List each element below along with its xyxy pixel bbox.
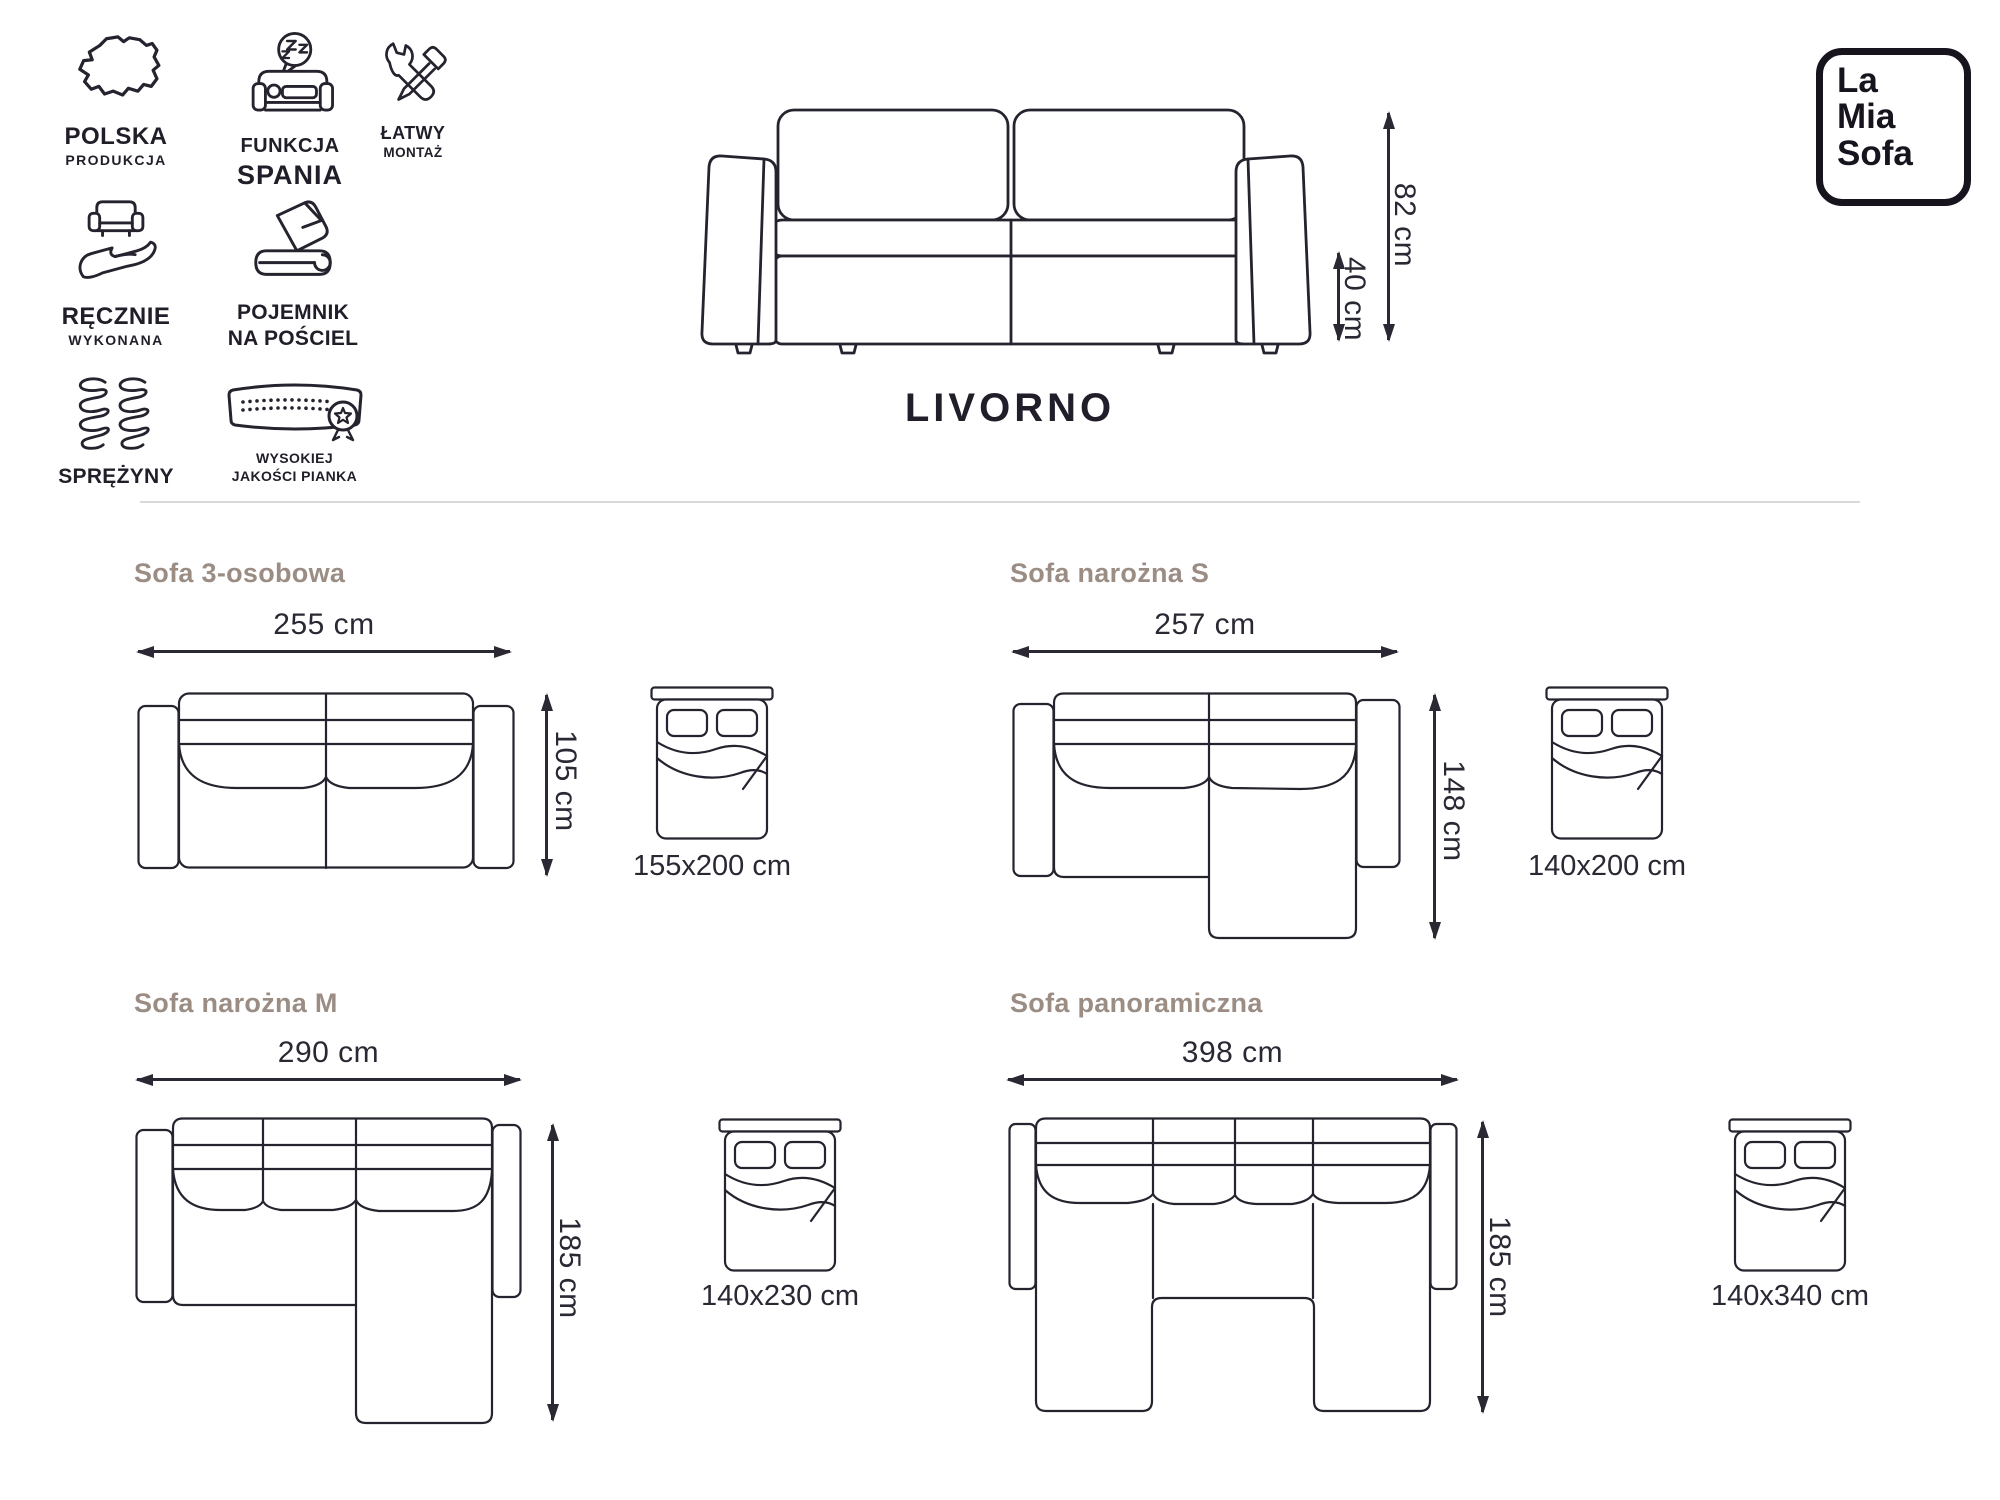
product-title: LIVORNO — [710, 386, 1310, 431]
variant-width-label: 257 cm — [1013, 608, 1397, 642]
brand-logo: La Mia Sofa — [1816, 48, 1971, 206]
dimension-label-seat-height: 40 cm — [1339, 229, 1369, 369]
feature-wysokiej-jakosci-pianka: WYSOKIEJ JAKOŚCI PIANKA — [192, 378, 397, 485]
brand-line: Sofa — [1837, 136, 1964, 172]
sofa-top-view-narozna-s — [1012, 692, 1401, 940]
variant-heading: Sofa narożna S — [1010, 558, 1209, 589]
feature-polska-produkcja: POLSKA PRODUKCJA — [36, 34, 196, 170]
depth-arrow — [545, 695, 548, 875]
sofa-front-view-drawing — [692, 94, 1320, 362]
bed-top-view-icon — [1545, 686, 1669, 840]
sofa-top-view-narozna-m — [135, 1117, 522, 1425]
feature-sublabel: NA POŚCIEL — [198, 326, 388, 352]
bed-top-view-icon — [650, 686, 774, 840]
width-arrow — [137, 1078, 520, 1081]
width-arrow — [138, 650, 510, 653]
feature-pojemnik-na-posciel: POJEMNIK NA POŚCIEL — [198, 194, 388, 353]
easy-assembly-icon — [348, 40, 478, 114]
variant-width-label: 255 cm — [138, 608, 510, 642]
brand-line: La — [1837, 63, 1964, 99]
variant-width-label: 398 cm — [1008, 1036, 1457, 1070]
product-spec-sheet: POLSKA PRODUKCJA FUNKCJA SPANIA — [0, 0, 2000, 1500]
feature-recznie-wykonana: RĘCZNIE WYKONANA — [36, 198, 196, 350]
section-divider — [140, 501, 1860, 503]
bed-top-view-icon — [1728, 1118, 1852, 1272]
feature-label: POJEMNIK — [198, 300, 388, 326]
feature-sublabel: SPANIA — [200, 159, 380, 193]
depth-arrow — [1433, 695, 1436, 938]
variant-depth-label: 185 cm — [554, 1198, 584, 1338]
bed-size-label: 140x340 cm — [1705, 1280, 1875, 1313]
width-arrow — [1008, 1078, 1457, 1081]
feature-sprezyny: SPRĘŻYNY — [36, 372, 196, 490]
bedding-storage-icon — [198, 194, 388, 292]
variant-width-label: 290 cm — [137, 1036, 520, 1070]
feature-sublabel: JAKOŚCI PIANKA — [192, 468, 397, 486]
bed-size-label: 155x200 cm — [627, 850, 797, 883]
feature-label: SPRĘŻYNY — [36, 464, 196, 490]
foam-quality-icon — [192, 378, 397, 442]
feature-latwy-montaz: ŁATWY MONTAŻ — [348, 40, 478, 161]
feature-label: RĘCZNIE — [36, 302, 196, 332]
variant-heading: Sofa narożna M — [134, 988, 338, 1019]
feature-sublabel: PRODUKCJA — [36, 152, 196, 170]
feature-sublabel: MONTAŻ — [348, 145, 478, 162]
variant-depth-label: 185 cm — [1484, 1197, 1514, 1337]
feature-sublabel: WYKONANA — [36, 332, 196, 350]
width-arrow — [1013, 650, 1397, 653]
sofa-top-view-3-osobowa — [137, 692, 515, 880]
feature-label: POLSKA — [36, 122, 196, 152]
variant-depth-label: 105 cm — [550, 711, 580, 851]
bed-size-label: 140x200 cm — [1522, 850, 1692, 883]
dimension-label-total-height: 82 cm — [1389, 155, 1419, 295]
poland-map-icon — [36, 34, 196, 114]
variant-heading: Sofa 3-osobowa — [134, 558, 345, 589]
brand-line: Mia — [1837, 99, 1964, 135]
variant-depth-label: 148 cm — [1438, 741, 1468, 881]
sofa-top-view-panoramiczna — [1008, 1117, 1458, 1413]
bed-size-label: 140x230 cm — [695, 1280, 865, 1313]
variant-heading: Sofa panoramiczna — [1010, 988, 1263, 1019]
feature-label: WYSOKIEJ — [192, 450, 397, 468]
feature-label: ŁATWY — [348, 122, 478, 145]
handmade-icon — [36, 198, 196, 294]
springs-icon — [36, 372, 196, 456]
bed-top-view-icon — [718, 1118, 842, 1272]
